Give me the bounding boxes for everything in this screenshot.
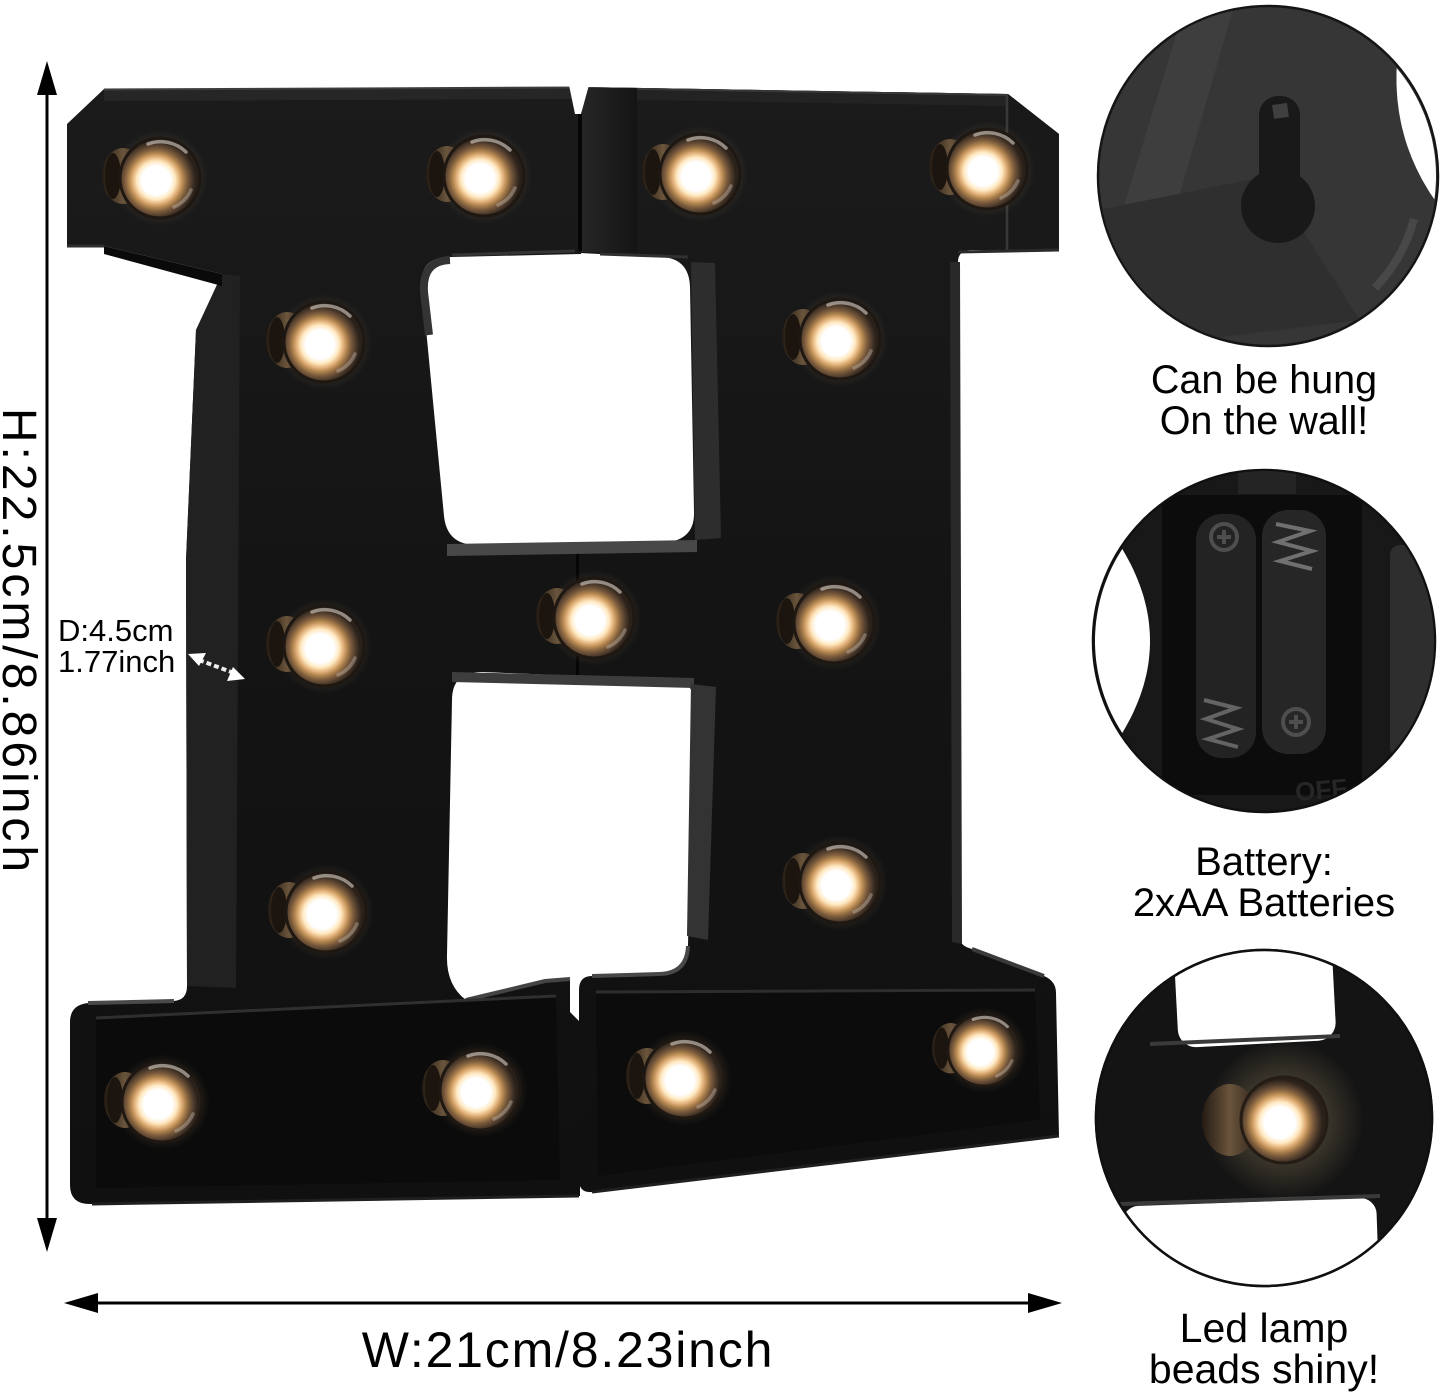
svg-text:On the wall!: On the wall! (1160, 399, 1369, 443)
svg-text:D:4.5cm: D:4.5cm (58, 613, 173, 648)
svg-text:Led lamp: Led lamp (1180, 1305, 1349, 1351)
svg-text:2xAA Batteries: 2xAA Batteries (1133, 881, 1395, 925)
svg-text:beads shiny!: beads shiny! (1149, 1346, 1379, 1392)
svg-text:Battery:: Battery: (1195, 840, 1333, 884)
svg-text:W:21cm/8.23inch: W:21cm/8.23inch (362, 1322, 774, 1378)
svg-text:H:22.5cm/8.86inch: H:22.5cm/8.86inch (0, 408, 45, 876)
svg-text:Can be hung: Can be hung (1151, 358, 1377, 402)
svg-text:1.77inch: 1.77inch (58, 644, 175, 679)
